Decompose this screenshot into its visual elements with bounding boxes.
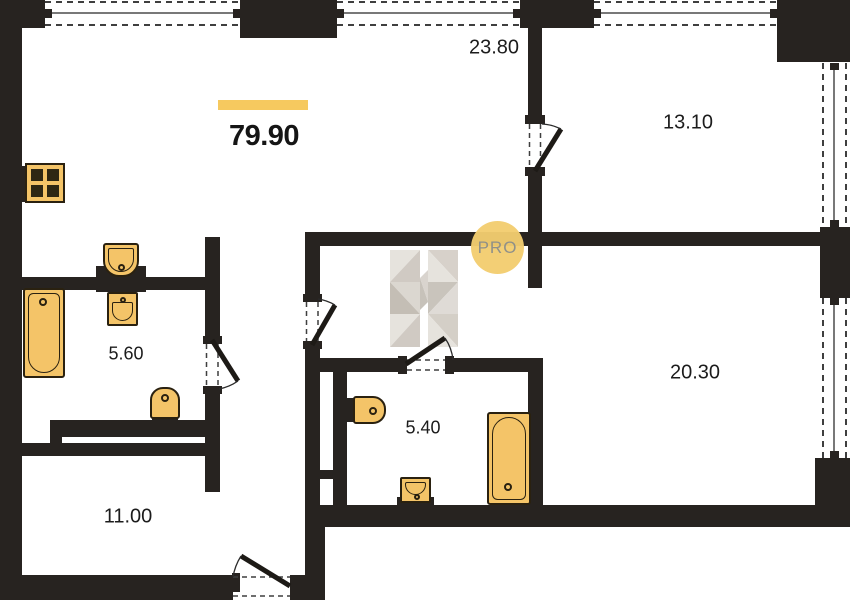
window-dash: [594, 1, 777, 3]
wall-bottom-left: [0, 575, 233, 600]
door-panel-bedroom1: [535, 129, 561, 171]
window-dash: [845, 298, 847, 458]
door-jamb: [203, 386, 222, 394]
sink-drain: [118, 264, 125, 271]
door-jamb: [525, 115, 545, 124]
wall-top-left-corner: [0, 0, 45, 28]
room-area-bedroom2: 20.30: [670, 362, 720, 385]
window-dash: [337, 24, 520, 26]
toilet-bowl: [369, 407, 377, 415]
window-sill-mark: [45, 9, 52, 18]
burner-icon: [31, 185, 43, 197]
window-sill-mark: [830, 220, 839, 227]
toilet-bowl: [161, 394, 169, 402]
window-glass-line: [45, 12, 240, 14]
window-glass-line: [594, 12, 777, 14]
wall-bathroom2-left: [333, 372, 347, 505]
door-panel-bathroom2: [406, 338, 445, 364]
window-dash: [822, 298, 824, 458]
wall-shaft-connector-2: [320, 470, 347, 479]
door-panel-bathroom1: [212, 340, 238, 381]
sink-faucet: [120, 297, 126, 303]
window-sill-mark: [830, 451, 839, 458]
window-dash: [845, 63, 847, 227]
wall-top-pier-2: [520, 0, 594, 28]
window-dash: [337, 1, 520, 3]
floor-plan: 79.90 23.80 13.10 20.30 5.60 5.40 11.00 …: [0, 0, 850, 600]
window-glass-line: [833, 63, 835, 227]
door-jamb: [303, 294, 322, 302]
wall-living-bedroom1-upper: [528, 28, 542, 115]
burner-icon: [47, 185, 59, 197]
bathroom1-sink-icon: [107, 292, 138, 326]
door-jamb: [303, 341, 322, 349]
toilet-icon: [150, 387, 180, 419]
window-glass-line: [833, 298, 835, 458]
bathtub-icon: [487, 412, 531, 505]
window-dash: [45, 24, 240, 26]
room-area-bedroom1: 13.10: [663, 112, 713, 135]
stove-icon: [25, 163, 65, 203]
bathtub-icon: [23, 288, 65, 378]
window-sill-mark: [594, 9, 601, 18]
kitchen-sink-icon: [103, 243, 139, 277]
door-jamb: [232, 573, 240, 592]
wall-top-pier-1: [240, 0, 337, 38]
watermark-logo: [390, 250, 458, 347]
pro-badge-label: PRO: [478, 238, 518, 258]
toilet-tank: [152, 417, 178, 433]
wall-entry-top: [22, 443, 220, 456]
room-area-bathroom2: 5.40: [405, 418, 440, 439]
window-sill-mark: [770, 9, 777, 18]
window-glass-line: [337, 12, 520, 14]
sink-basin: [112, 302, 133, 321]
door-jamb: [203, 336, 222, 344]
wall-left-exterior: [0, 0, 22, 600]
pro-badge: PRO: [471, 221, 524, 274]
door-jamb: [398, 356, 407, 374]
wall-bottom-main: [325, 505, 850, 527]
window-sill-mark: [830, 298, 839, 305]
wall-horizontal-main: [305, 232, 820, 246]
burner-icon: [31, 169, 43, 181]
window-sill-mark: [513, 9, 520, 18]
door-jamb: [445, 356, 454, 374]
window-dash: [822, 63, 824, 227]
window-sill-mark: [830, 63, 839, 70]
window-sill-mark: [233, 9, 240, 18]
door-panel-hall: [312, 305, 335, 345]
door-panel-entry: [241, 556, 290, 586]
door-jamb: [525, 167, 545, 176]
window-dash: [45, 1, 240, 3]
wall-bathroom1-bottom: [50, 420, 205, 437]
wall-hall-left-upper: [305, 246, 320, 294]
total-area-label: 79.90: [218, 120, 310, 153]
wall-top-right-corner: [777, 0, 850, 62]
wall-bathroom2-top-left: [320, 358, 406, 372]
bathtub-drain: [39, 298, 47, 306]
bathtub-drain: [504, 483, 512, 491]
wall-right-mid: [820, 227, 850, 298]
burner-icon: [47, 169, 59, 181]
toilet-icon: [353, 396, 386, 424]
total-area-accent-bar: [218, 100, 308, 110]
window-dash: [594, 24, 777, 26]
room-area-living: 23.80: [469, 37, 519, 60]
window-sill-mark: [337, 9, 344, 18]
room-area-bathroom1: 5.60: [108, 344, 143, 365]
bathroom2-sink-icon: [400, 477, 431, 503]
wall-hall-left-lower: [305, 349, 320, 600]
room-area-entry: 11.00: [104, 506, 153, 529]
sink-drain: [414, 494, 420, 500]
